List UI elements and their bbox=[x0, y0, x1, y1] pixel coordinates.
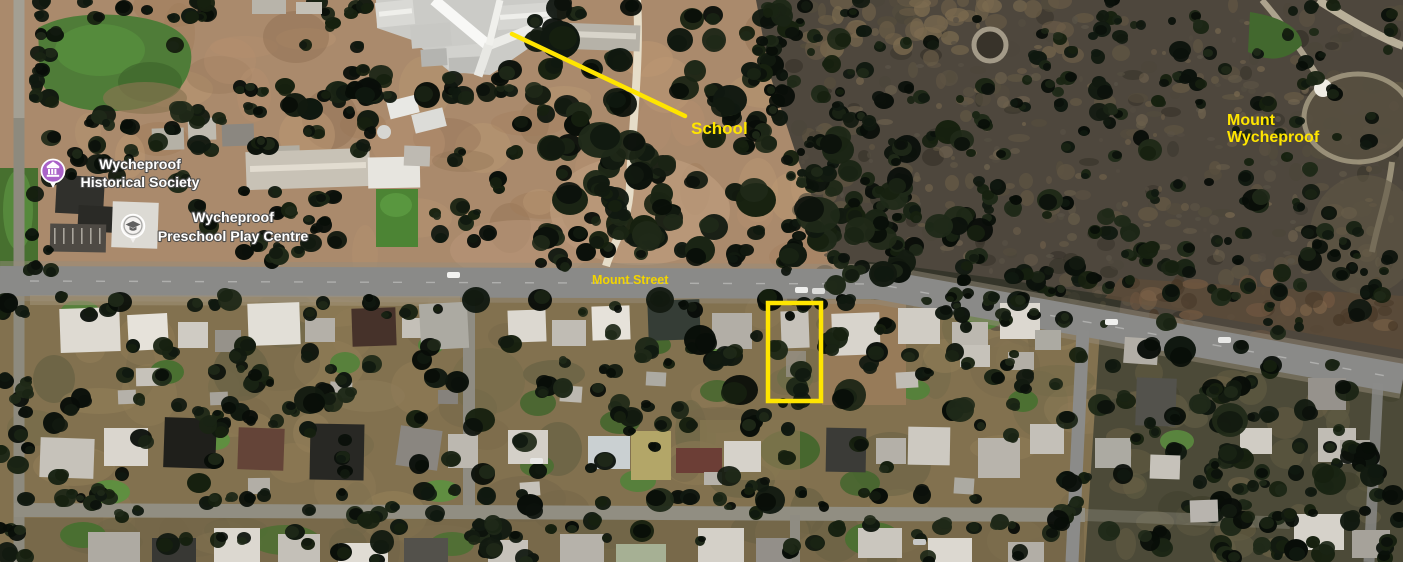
svg-text:Mount: Mount bbox=[1227, 112, 1276, 129]
svg-text:School: School bbox=[691, 119, 748, 138]
svg-text:Mount Street: Mount Street bbox=[592, 273, 669, 287]
svg-text:Preschool Play Centre: Preschool Play Centre bbox=[158, 229, 309, 245]
svg-text:Historical Society: Historical Society bbox=[80, 175, 199, 191]
svg-text:Wycheproof: Wycheproof bbox=[99, 157, 181, 173]
svg-text:Wycheproof: Wycheproof bbox=[1227, 129, 1320, 146]
svg-text:Wycheproof: Wycheproof bbox=[192, 210, 274, 226]
